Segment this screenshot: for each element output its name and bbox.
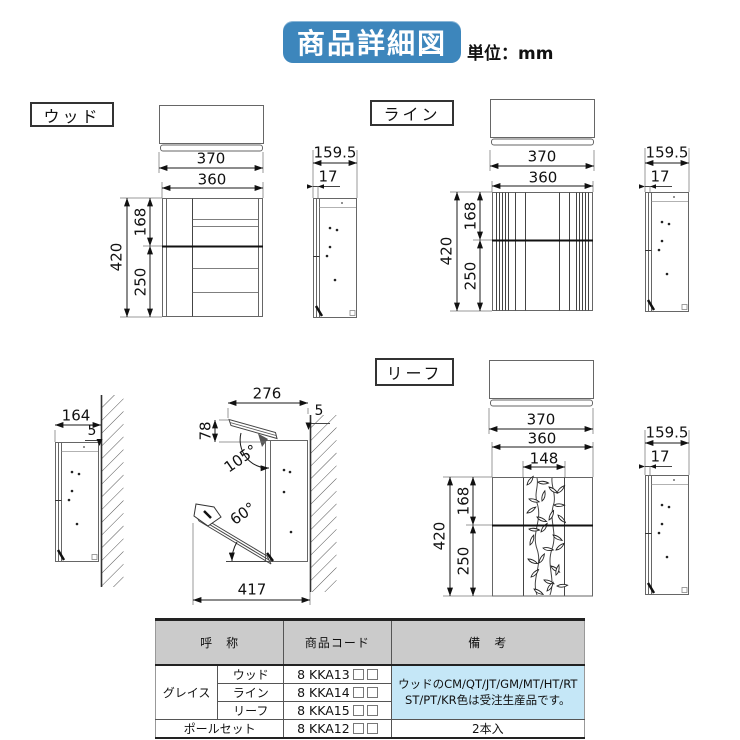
table-row-pole-set: ポールセット 8 KKA12 2本入 <box>156 720 585 739</box>
group-label-grace: グレイス <box>156 665 218 720</box>
color-code-box <box>367 687 378 698</box>
table-header-row: 呼 称 商品コード 備 考 <box>156 620 585 666</box>
dim-wood-370: 370 <box>197 152 226 167</box>
dim-leaf-360: 360 <box>528 432 557 447</box>
dim-wood-168: 168 <box>134 208 149 237</box>
color-code-box <box>367 705 378 716</box>
section-label-line: ライン <box>370 100 454 126</box>
dim-leaf-side-159: 159.5 <box>646 426 689 441</box>
dim-leaf-168: 168 <box>457 487 472 516</box>
open-door-side-view <box>193 403 337 605</box>
line-front-view <box>492 193 593 311</box>
row-name-wood: ウッド <box>218 665 284 684</box>
dim-open-gap-5: 5 <box>315 404 324 418</box>
table-row-wood: グレイス ウッド 8 KKA13 ウッドのCM/QT/JT/GM/MT/HT/R… <box>156 665 585 684</box>
dim-leaf-148: 148 <box>530 452 559 467</box>
dim-line-168: 168 <box>464 202 479 231</box>
dim-leaf-side-17: 17 <box>650 450 669 465</box>
wood-top-view <box>160 106 264 152</box>
color-code-box <box>353 705 364 716</box>
row-name-pole-set: ポールセット <box>156 720 284 739</box>
dim-line-250: 250 <box>464 262 479 291</box>
row-code-leaf: 8 KKA15 <box>284 702 391 720</box>
remarks-cell: ウッドのCM/QT/JT/GM/MT/HT/RT ST/PT/KR色は受注生産品… <box>391 665 584 720</box>
dim-wood-360: 360 <box>198 173 227 188</box>
dim-line-370: 370 <box>528 150 557 165</box>
section-label-leaf: リーフ <box>375 358 454 386</box>
row-note-pole-set: 2本入 <box>391 720 584 739</box>
product-detail-diagram: 商品詳細図 単位：mm ウッド ライン リーフ 370 360 420 168 … <box>0 0 740 740</box>
dim-line-side-159: 159.5 <box>646 146 689 161</box>
row-code-wood: 8 KKA13 <box>284 665 391 684</box>
code-text: 8 KKA14 <box>297 685 350 700</box>
remarks-line-1: ウッドのCM/QT/JT/GM/MT/HT/RT <box>392 677 584 693</box>
header-code: 商品コード <box>284 620 391 666</box>
leaf-front-view <box>492 476 593 597</box>
dim-wood-420: 420 <box>110 243 125 272</box>
dim-line-420: 420 <box>440 237 455 266</box>
dim-wood-side-17: 17 <box>318 170 337 185</box>
color-code-box <box>353 687 364 698</box>
color-code-box <box>353 723 364 734</box>
unit-label: 単位：mm <box>467 39 553 64</box>
dim-wood-side-159: 159.5 <box>314 146 357 161</box>
dim-wall-gap-5: 5 <box>88 424 97 438</box>
row-name-leaf: リーフ <box>218 702 284 720</box>
row-code-line: 8 KKA14 <box>284 684 391 702</box>
dim-leaf-250: 250 <box>457 547 472 576</box>
dim-line-360: 360 <box>529 171 558 186</box>
page-title: 商品詳細図 <box>283 21 461 63</box>
dim-open-417: 417 <box>238 583 267 598</box>
color-code-box <box>367 723 378 734</box>
line-top-view <box>491 100 595 146</box>
code-text: 8 KKA12 <box>297 721 350 736</box>
wood-front-view <box>162 199 263 317</box>
dim-open-78: 78 <box>199 421 214 440</box>
dim-leaf-370: 370 <box>527 413 556 428</box>
color-code-box <box>367 669 378 680</box>
dim-wood-250: 250 <box>134 268 149 297</box>
dim-leaf-420: 420 <box>433 522 448 551</box>
dim-line-side-17: 17 <box>650 170 669 185</box>
dim-wall-164: 164 <box>62 409 91 424</box>
code-text: 8 KKA13 <box>297 667 350 682</box>
header-name: 呼 称 <box>156 620 284 666</box>
leaf-top-view <box>490 361 594 407</box>
code-text: 8 KKA15 <box>297 703 350 718</box>
header-note: 備 考 <box>391 620 584 666</box>
color-code-box <box>353 669 364 680</box>
row-name-line: ライン <box>218 684 284 702</box>
spec-table: 呼 称 商品コード 備 考 グレイス ウッド 8 KKA13 ウッドのCM/QT… <box>155 618 585 739</box>
row-code-pole-set: 8 KKA12 <box>284 720 391 739</box>
section-label-wood: ウッド <box>30 102 114 127</box>
remarks-line-2: ST/PT/KR色は受注生産品です。 <box>392 693 584 709</box>
dim-open-276: 276 <box>253 387 282 402</box>
